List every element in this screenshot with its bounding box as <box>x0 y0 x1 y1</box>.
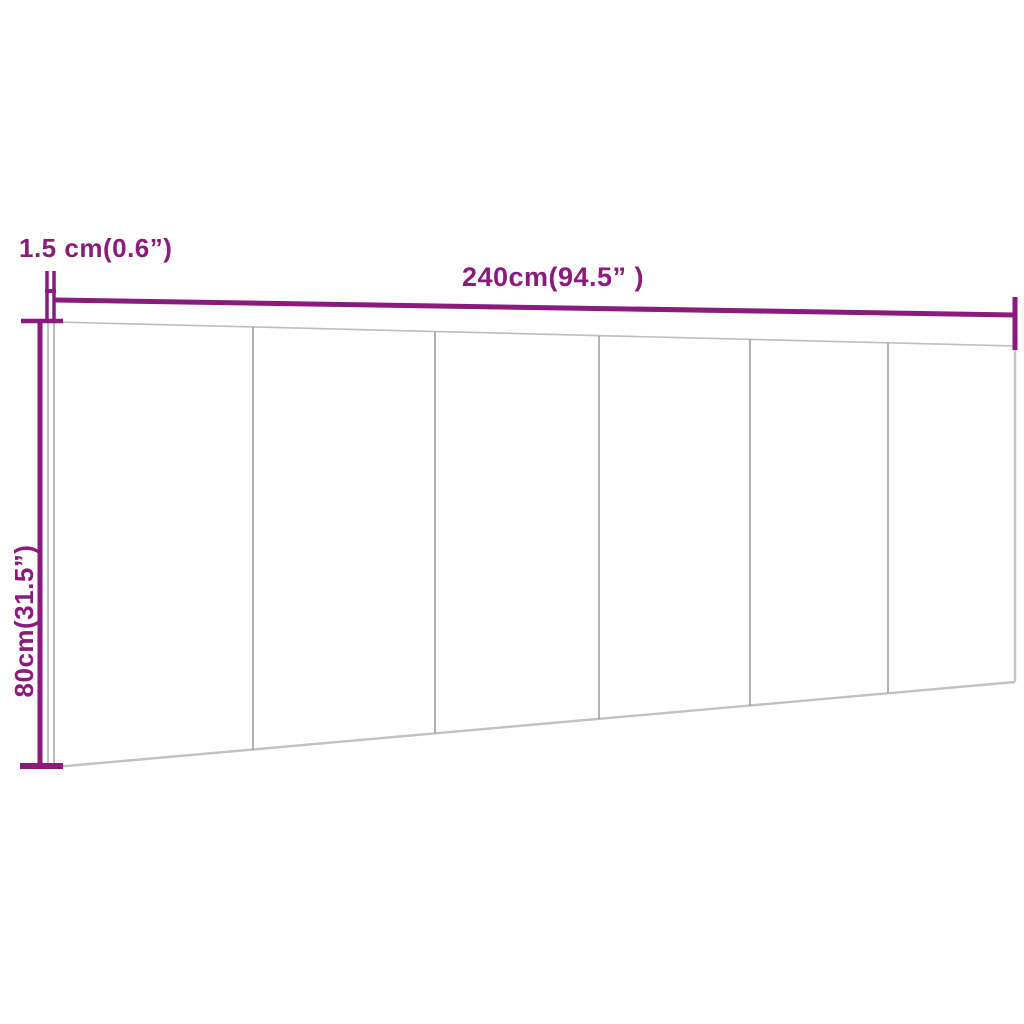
dimension-diagram: 1.5 cm(0.6”) 240cm(94.5” ) 80cm(31.5”) <box>0 0 1024 1024</box>
height-label: 80cm(31.5”) <box>9 471 39 771</box>
thickness-label: 1.5 cm(0.6”) <box>19 233 172 263</box>
width-label: 240cm(94.5” ) <box>368 262 738 292</box>
panel-front-face <box>55 322 1015 767</box>
width-dimension-line <box>55 300 1015 315</box>
headboard-drawing <box>0 0 1024 1024</box>
